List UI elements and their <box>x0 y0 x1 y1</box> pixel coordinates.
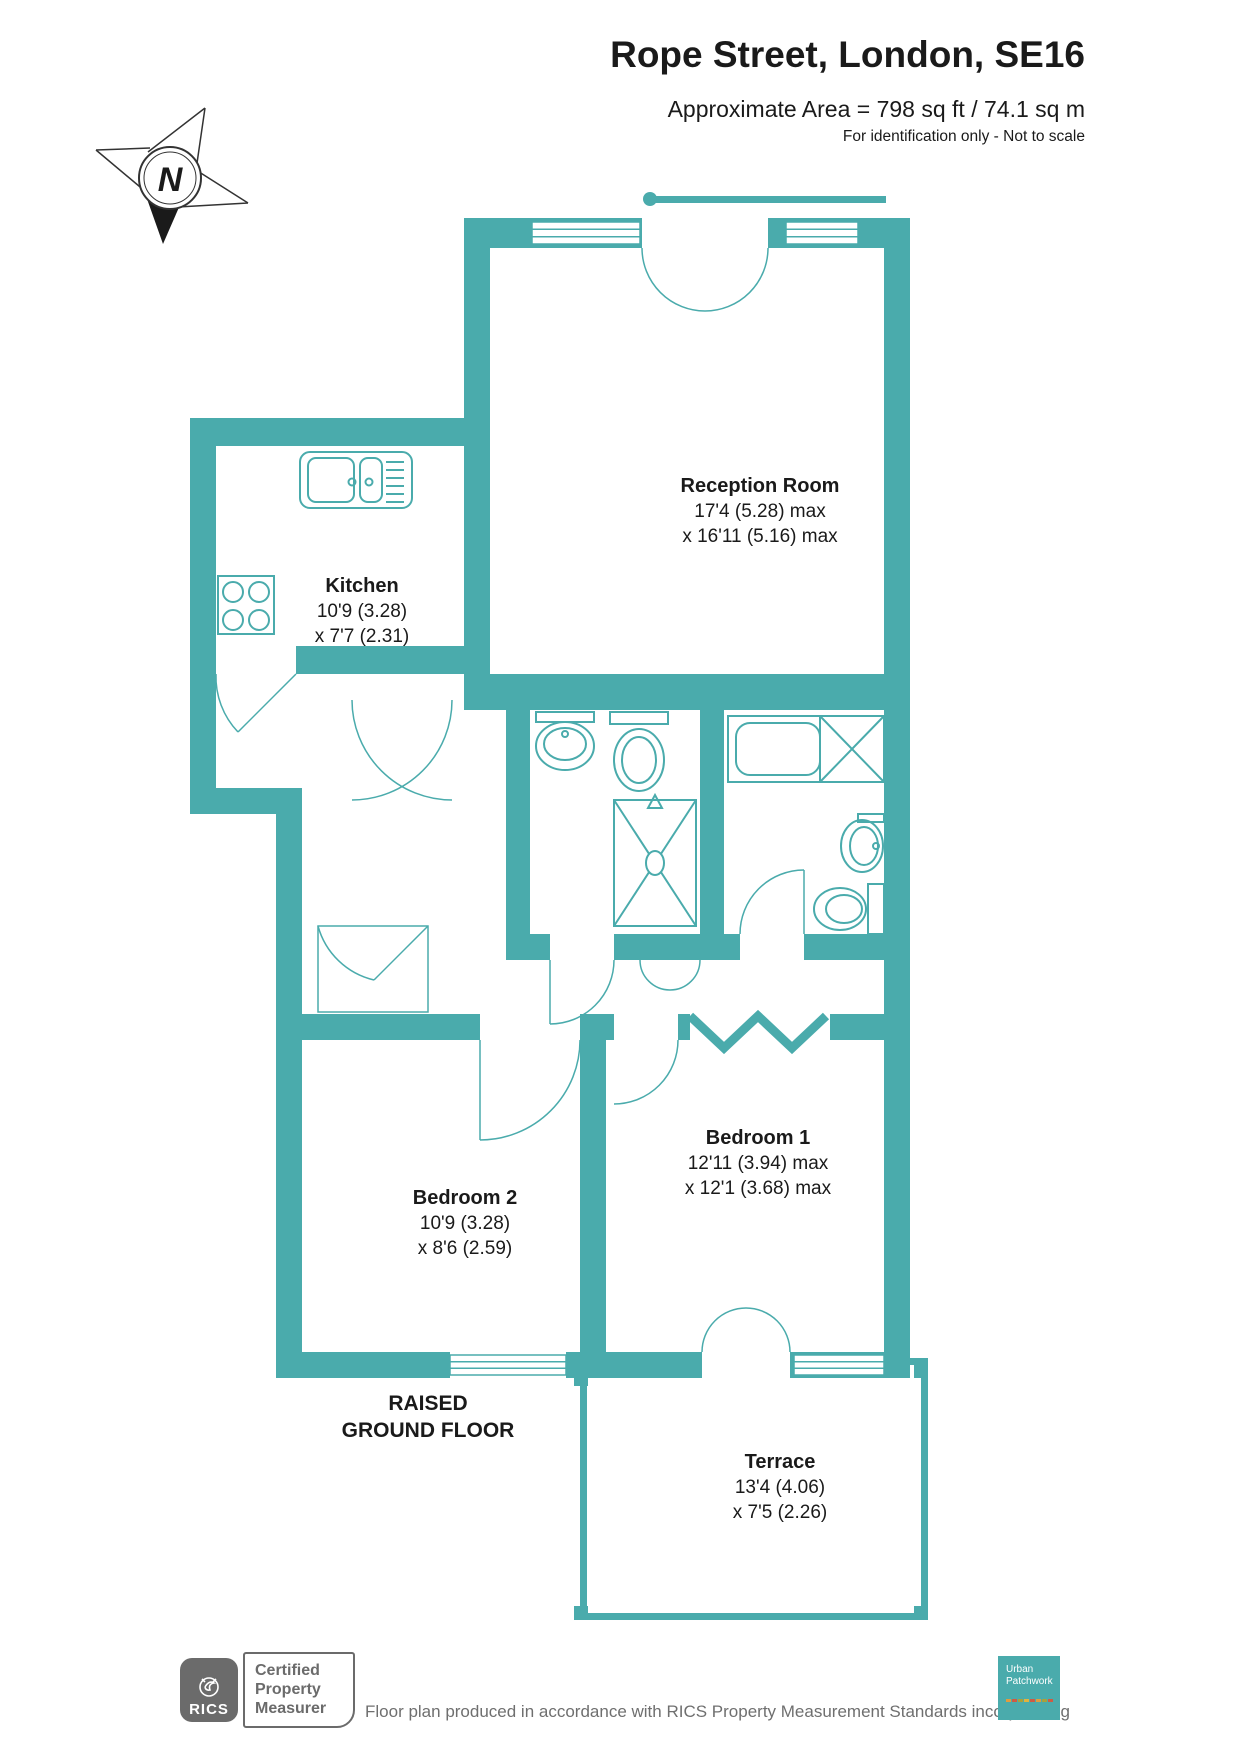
floor-name-line1: RAISED <box>342 1390 515 1417</box>
room-dim1: 17'4 (5.28) max <box>681 499 840 524</box>
room-name: Reception Room <box>681 474 840 499</box>
cert-line1: Certified <box>255 1661 353 1680</box>
compass-north-label: N <box>158 161 184 199</box>
room-dim1: 10'9 (3.28) <box>315 599 409 624</box>
room-name: Bedroom 2 <box>413 1186 517 1211</box>
label-bedroom-2: Bedroom 2 10'9 (3.28) x 8'6 (2.59) <box>413 1186 517 1261</box>
room-dim1: 12'11 (3.94) max <box>685 1151 831 1176</box>
room-dim2: x 7'7 (2.31) <box>315 624 409 649</box>
rics-brand-text: RICS <box>189 1703 229 1717</box>
cert-line2: Property <box>255 1680 353 1699</box>
shower-icon <box>614 795 696 926</box>
label-kitchen: Kitchen 10'9 (3.28) x 7'7 (2.31) <box>315 574 409 649</box>
floor-name-label: RAISED GROUND FLOOR <box>342 1390 515 1444</box>
floorplan-page: N <box>0 0 1241 1755</box>
rics-logo: RICS <box>180 1658 238 1722</box>
label-reception-room: Reception Room 17'4 (5.28) max x 16'11 (… <box>681 474 840 549</box>
floorplan-drawing: N <box>0 0 1241 1755</box>
kitchen-sink-icon <box>300 452 412 508</box>
room-dim2: x 8'6 (2.59) <box>413 1236 517 1261</box>
certified-property-measurer-badge: Certified Property Measurer <box>243 1652 355 1728</box>
room-name: Kitchen <box>315 574 409 599</box>
compass-icon: N <box>96 108 248 244</box>
room-dim2: x 12'1 (3.68) max <box>685 1176 831 1201</box>
scale-disclaimer: For identification only - Not to scale <box>843 128 1085 146</box>
basin-icon <box>536 712 594 770</box>
bathtub-icon <box>728 716 884 782</box>
logo-line1: Urban <box>1006 1664 1060 1676</box>
urban-patchwork-logo: Urban Patchwork <box>998 1656 1060 1720</box>
label-terrace: Terrace 13'4 (4.06) x 7'5 (2.26) <box>733 1450 827 1525</box>
room-dim1: 13'4 (4.06) <box>733 1475 827 1500</box>
toilet-icon <box>610 712 668 791</box>
room-name: Terrace <box>733 1450 827 1475</box>
room-dim2: x 16'11 (5.16) max <box>681 524 840 549</box>
logo-dashes <box>1006 1698 1060 1702</box>
room-dim1: 10'9 (3.28) <box>413 1211 517 1236</box>
room-dim2: x 7'5 (2.26) <box>733 1500 827 1525</box>
logo-line2: Patchwork <box>1006 1676 1060 1688</box>
bathroom-toilet-icon <box>814 884 884 934</box>
footer-disclaimer: Floor plan produced in accordance with R… <box>365 1656 1070 1755</box>
floor-name-line2: GROUND FLOOR <box>342 1417 515 1444</box>
bathroom-basin-icon <box>841 814 884 872</box>
page-title: Rope Street, London, SE16 <box>610 34 1085 76</box>
area-line: Approximate Area = 798 sq ft / 74.1 sq m <box>668 96 1085 123</box>
cert-line3: Measurer <box>255 1699 353 1718</box>
label-bedroom-1: Bedroom 1 12'11 (3.94) max x 12'1 (3.68)… <box>685 1126 831 1201</box>
rics-lion-icon <box>192 1673 226 1703</box>
hob-icon <box>218 576 274 634</box>
footer-disclaimer-line1: Floor plan produced in accordance with R… <box>365 1701 1070 1723</box>
room-name: Bedroom 1 <box>685 1126 831 1151</box>
walls <box>190 192 928 1620</box>
